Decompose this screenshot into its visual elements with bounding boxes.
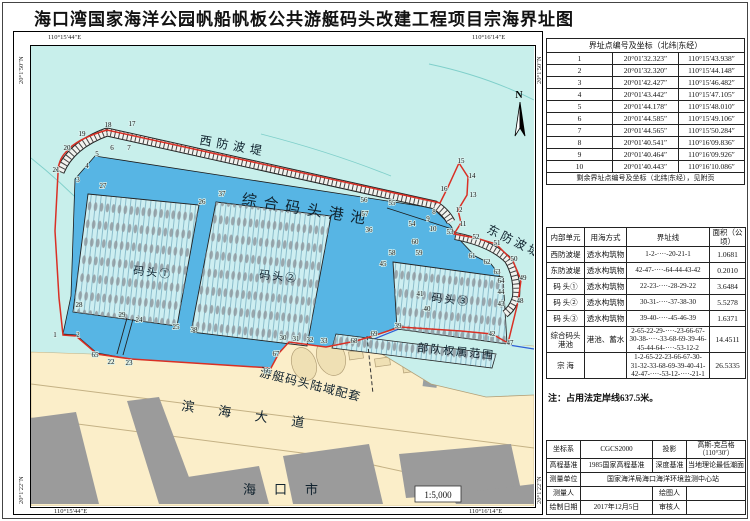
- boundary-point-label: 27: [100, 182, 108, 190]
- boundary-point-label: 44: [498, 288, 506, 296]
- north-label: N: [515, 90, 523, 101]
- scale-box: 1:5,000: [415, 486, 461, 502]
- boundary-point-label: 51: [494, 239, 502, 247]
- meta-date-value: 2017年12月5日: [581, 500, 653, 514]
- boundary-point-label: 16: [441, 185, 449, 193]
- boundary-point-label: 64: [498, 277, 506, 285]
- boundary-point-label: 42: [489, 330, 497, 338]
- boundary-point-label: 43: [498, 300, 506, 308]
- meta-coord-value: CGCS2000: [581, 441, 653, 459]
- meta-surveyor-value: [581, 486, 653, 500]
- boundary-point-label: 38: [191, 326, 199, 334]
- boundary-point-label: 7: [127, 144, 131, 152]
- boundary-point-label: 37: [219, 190, 227, 198]
- boundary-point-label: 10: [430, 225, 438, 233]
- table-row: 码 头①透水构筑物22-23-····-28-29-223.6484: [547, 279, 746, 295]
- boundary-table-body: 120°01′32.323″110°15′43.938″220°01′32.32…: [547, 53, 745, 173]
- coord-bottom-left: 110°15′44″E: [54, 508, 87, 515]
- boundary-point-label: 3: [76, 176, 80, 184]
- table-row: 820°01′40.541″110°16′09.836″: [547, 137, 745, 149]
- boundary-point-label: 67: [273, 350, 281, 358]
- boundary-point-label: 20: [64, 144, 72, 152]
- boundary-point-label: 31: [293, 335, 301, 343]
- table-row: 520°01′44.178″110°15′48.010″: [547, 101, 745, 113]
- boundary-point-label: 52: [473, 233, 481, 241]
- coord-left-top: 20°1′50″N: [18, 56, 25, 84]
- map-frame: 110°15′44″E 110°16′14″E 110°15′44″E 110°…: [13, 31, 543, 515]
- boundary-point-label: 12: [456, 206, 464, 214]
- boundary-point-label: 41: [417, 290, 425, 298]
- boundary-point-label: 59: [416, 249, 424, 257]
- table-row: 920°01′40.464″110°16′09.926″: [547, 149, 745, 161]
- boundary-point-label: 69: [371, 330, 379, 338]
- meta-proj-value: 高斯-克吕格（110°30′）: [687, 441, 746, 459]
- meta-elev-label: 高程基准: [547, 458, 581, 472]
- meta-reviewer-value: [687, 500, 746, 514]
- boundary-point-label: 19: [79, 130, 87, 138]
- table-row: 220°01′32.320″110°15′44.148″: [547, 65, 745, 77]
- boundary-point-label: 28: [76, 301, 84, 309]
- boundary-point-label: 68: [351, 337, 359, 345]
- boundary-point-label: 8: [432, 208, 436, 216]
- boundary-table-footer: 剩余界址点编号及坐标（北纬|东经），见附页: [547, 173, 745, 185]
- pier-1: [73, 194, 199, 326]
- units-table: 内部单元 用海方式 界址线 面积（公顷） 西防波堤透水构筑物1-2-····-2…: [546, 227, 746, 379]
- meta-coord-label: 坐标系: [547, 441, 581, 459]
- boundary-point-label: 25: [173, 323, 181, 331]
- meta-draftsman-value: [687, 486, 746, 500]
- map-neatline: 西防波堤 东防波堤 综合码头港池 码头① 码头② 码头③ 部队权属范围 游艇码头…: [30, 45, 536, 508]
- boundary-table-title: 界址点编号及坐标（北纬|东经）: [547, 39, 745, 53]
- boundary-point-label: 60: [412, 238, 420, 246]
- boundary-point-label: 5: [95, 150, 99, 158]
- table-row: 420°01′43.442″110°15′47.105″: [547, 89, 745, 101]
- boundary-point-label: 15: [458, 157, 466, 165]
- boundary-point-label: 58: [389, 249, 397, 257]
- coord-right-bottom: 20°1′22″N: [536, 476, 543, 504]
- meta-elev-value: 1985国家高程基准: [581, 458, 653, 472]
- boundary-point-label: 29: [119, 311, 127, 319]
- units-table-body: 西防波堤透水构筑物1-2-····-20-21-11.0681东防波堤透水构筑物…: [547, 247, 746, 379]
- label-city: 海口市: [243, 482, 336, 497]
- meta-depth-label: 深度基准: [653, 458, 687, 472]
- boundary-point-label: 55: [389, 199, 397, 207]
- table-row: 1020°01′40.443″110°16′10.086″: [547, 161, 745, 173]
- meta-surveyor-label: 测量人: [547, 486, 581, 500]
- boundary-point-label: 36: [366, 226, 374, 234]
- table-row: 720°01′44.565″110°15′50.284″: [547, 125, 745, 137]
- boundary-point-label: 40: [424, 305, 432, 313]
- coord-right-top: 20°1′50″N: [536, 56, 543, 84]
- map-title: 海口湾国家海洋公园帆船帆板公共游艇码头改建工程项目宗海界址图: [0, 5, 608, 30]
- boundary-point-label: 39: [395, 322, 403, 330]
- boundary-point-label: 50: [511, 255, 519, 263]
- table-row: 西防波堤透水构筑物1-2-····-20-21-11.0681: [547, 247, 746, 263]
- coord-top-left: 110°15′44″E: [48, 34, 81, 41]
- boundary-point-label: 54: [409, 220, 417, 228]
- boundary-point-label: 14: [469, 172, 477, 180]
- table-row: 码 头②透水构筑物30-31-····-37-38-305.5278: [547, 295, 746, 311]
- page: { "title": "海口湾国家海洋公园帆船帆板公共游艇码头改建工程项目宗海界…: [0, 0, 750, 521]
- boundary-point-label: 18: [105, 121, 113, 129]
- meta-table: 坐标系 CGCS2000 投影 高斯-克吕格（110°30′） 高程基准 198…: [546, 440, 746, 515]
- boundary-point-label: 6: [110, 144, 114, 152]
- boundary-point-label: 56: [361, 196, 369, 204]
- meta-proj-label: 投影: [653, 441, 687, 459]
- units-header-mode: 用海方式: [585, 228, 627, 247]
- boundary-point-label: 66: [264, 367, 272, 375]
- boundary-point-label: 65: [92, 351, 100, 359]
- meta-reviewer-label: 审核人: [653, 500, 687, 514]
- boundary-point-label: 61: [469, 252, 477, 260]
- boundary-point-label: 63: [494, 268, 502, 276]
- shoreline-note: 注：占用法定岸线637.5米。: [548, 391, 658, 404]
- boundary-point-label: 57: [362, 210, 370, 218]
- boundary-point-label: 17: [129, 120, 137, 128]
- units-header-area: 面积（公顷）: [710, 228, 746, 247]
- table-row: 东防波堤透水构筑物42-47-····-64-44-43-420.2010: [547, 263, 746, 279]
- table-row: 码 头③透水构筑物39-40-····-45-46-391.6371: [547, 311, 746, 327]
- boundary-point-label: 48: [517, 297, 525, 305]
- table-row: 宗 海1-2-65-22-23-66-67-30- 31-32-33-68-69…: [547, 353, 746, 379]
- coord-left-bottom: 20°1′22″N: [18, 476, 25, 504]
- boundary-point-label: 62: [484, 258, 492, 266]
- boundary-point-label: 13: [470, 191, 478, 199]
- boundary-point-label: 23: [126, 359, 134, 367]
- boundary-point-label: 53: [447, 228, 455, 236]
- meta-survey-unit-value: 国家海洋局海口海洋环境监测中心站: [581, 472, 746, 486]
- boundary-point-label: 9: [426, 215, 430, 223]
- boundary-point-label: 32: [307, 336, 315, 344]
- boundary-point-label: 30: [280, 334, 288, 342]
- meta-draftsman-label: 绘图人: [653, 486, 687, 500]
- table-row: 综合码头港池港池、蓄水2-65-22-29-····-23-66-67- 30-…: [547, 327, 746, 353]
- boundary-point-label: 33: [321, 337, 329, 345]
- coord-top-right: 110°16′14″E: [472, 34, 505, 41]
- meta-survey-unit-label: 测量单位: [547, 472, 581, 486]
- meta-depth-value: 当地理论最低潮面: [687, 458, 746, 472]
- boundary-point-label: 21: [53, 166, 61, 174]
- units-header-line: 界址线: [627, 228, 710, 247]
- units-header-unit: 内部单元: [547, 228, 585, 247]
- meta-date-label: 绘制日期: [547, 500, 581, 514]
- boundary-point-label: 22: [108, 358, 116, 366]
- boundary-point-label: 2: [76, 331, 80, 339]
- table-row: 120°01′32.323″110°15′43.938″: [547, 53, 745, 65]
- boundary-point-label: 47: [507, 339, 515, 347]
- boundary-point-label: 1: [53, 331, 57, 339]
- map-canvas: 西防波堤 东防波堤 综合码头港池 码头① 码头② 码头③ 部队权属范围 游艇码头…: [31, 46, 534, 506]
- boundary-point-label: 26: [199, 198, 207, 206]
- boundary-point-label: 45: [380, 260, 388, 268]
- boundary-points-table: 界址点编号及坐标（北纬|东经） 120°01′32.323″110°15′43.…: [546, 38, 745, 185]
- scale-value: 1:5,000: [424, 490, 452, 500]
- coord-bottom-right: 110°16′14″E: [469, 508, 502, 515]
- boundary-point-label: 49: [520, 274, 528, 282]
- table-row: 320°01′42.427″110°15′46.482″: [547, 77, 745, 89]
- table-row: 620°01′44.585″110°15′49.106″: [547, 113, 745, 125]
- boundary-point-label: 4: [85, 162, 89, 170]
- boundary-point-label: 24: [136, 316, 144, 324]
- boundary-point-label: 11: [460, 220, 467, 228]
